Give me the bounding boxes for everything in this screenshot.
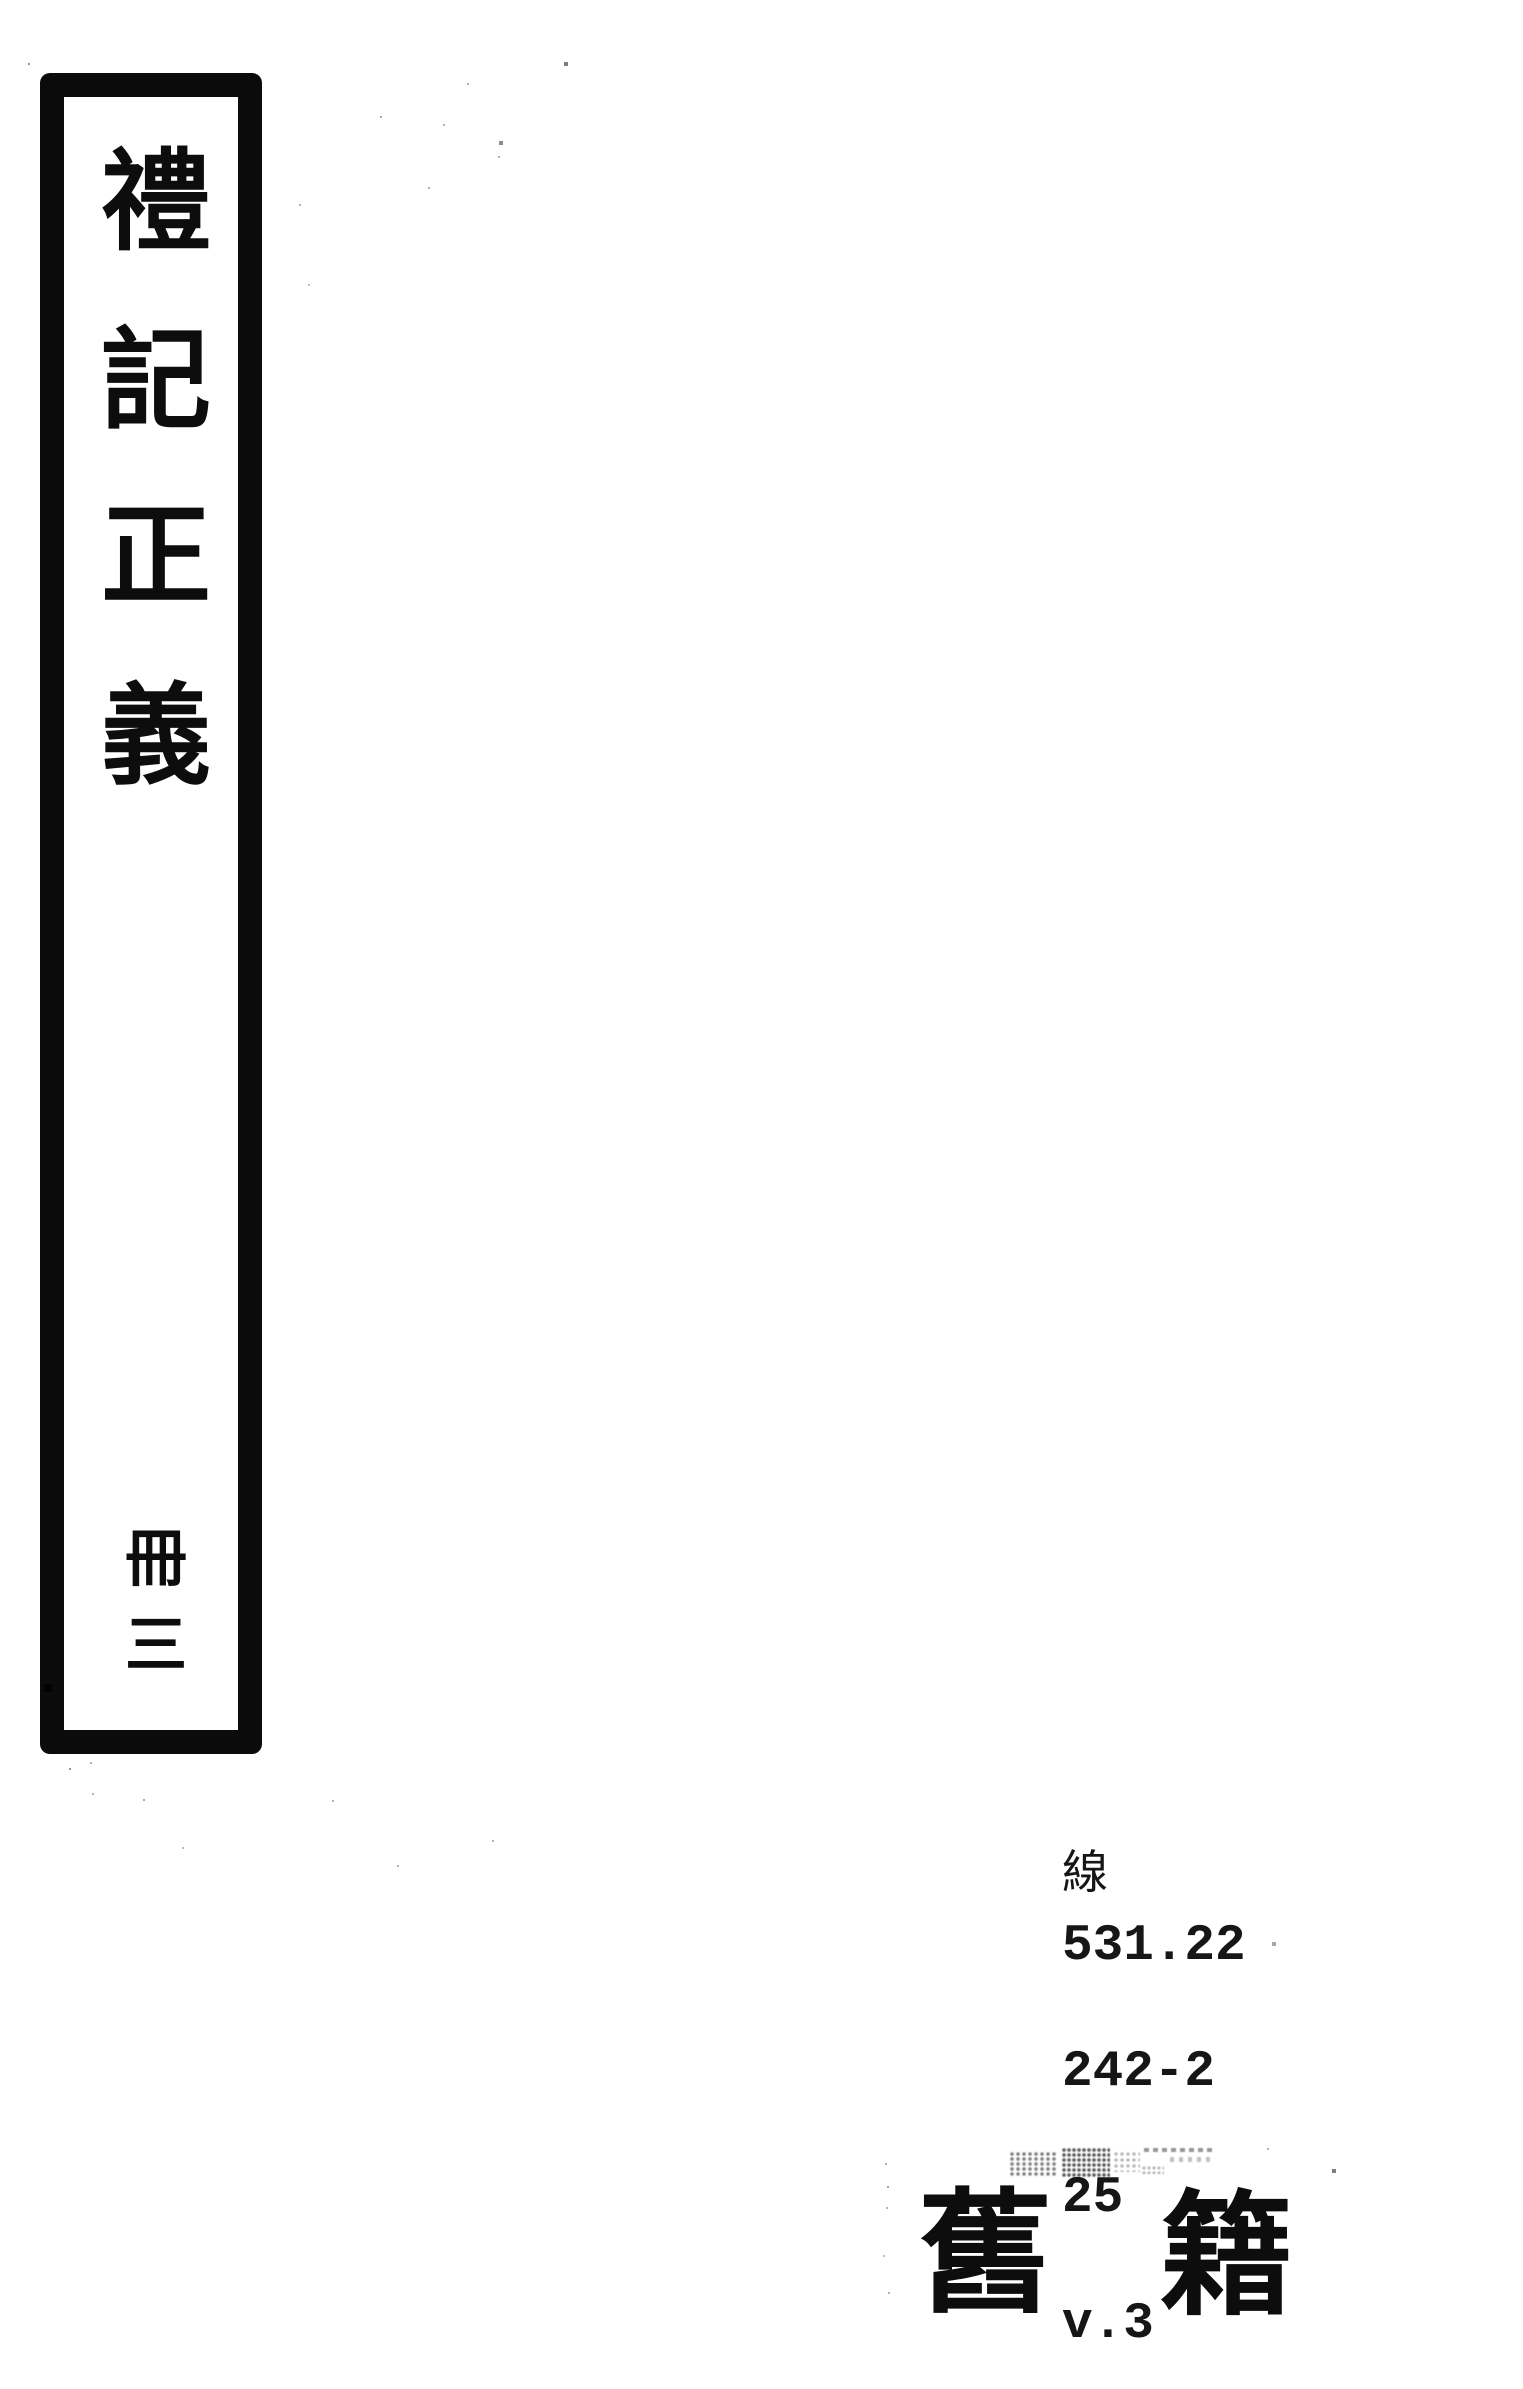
scanned-book-cover: 禮 記 正 義 冊 三 線 531.22 242-2 25 v.3 舊 籍 (0, 0, 1523, 2389)
spine-title-char-li: 禮 (101, 147, 211, 257)
spine-title-char-ji: 記 (101, 326, 211, 436)
call-number-line-1: 531.22 (1062, 1918, 1246, 1975)
smudge-blob (1010, 2152, 1058, 2176)
old-books-stamp-char-ji: 籍 (1160, 2188, 1294, 2322)
smudge-blob (1114, 2152, 1140, 2172)
call-number-class-char: 線 (1062, 1849, 1108, 1895)
old-books-stamp-char-jiu: 舊 (918, 2186, 1052, 2320)
spine-title-char-yi: 義 (101, 681, 211, 791)
smudge-blob (1062, 2148, 1110, 2178)
smudge-dashes (1170, 2157, 1212, 2162)
spine-title-char-zheng: 正 (101, 501, 211, 611)
smudge-dashes (1144, 2146, 1214, 2156)
volume-char-ce: 冊 (125, 1528, 187, 1590)
volume-char-san: 三 (125, 1614, 187, 1676)
smudge-blob (1142, 2166, 1164, 2174)
spine-title-box: 禮 記 正 義 冊 三 (40, 73, 262, 1754)
scan-noise-specks (0, 0, 2, 2)
call-number-line-4: v.3 (1062, 2296, 1154, 2353)
call-number-line-2: 242-2 (1062, 2044, 1215, 2101)
